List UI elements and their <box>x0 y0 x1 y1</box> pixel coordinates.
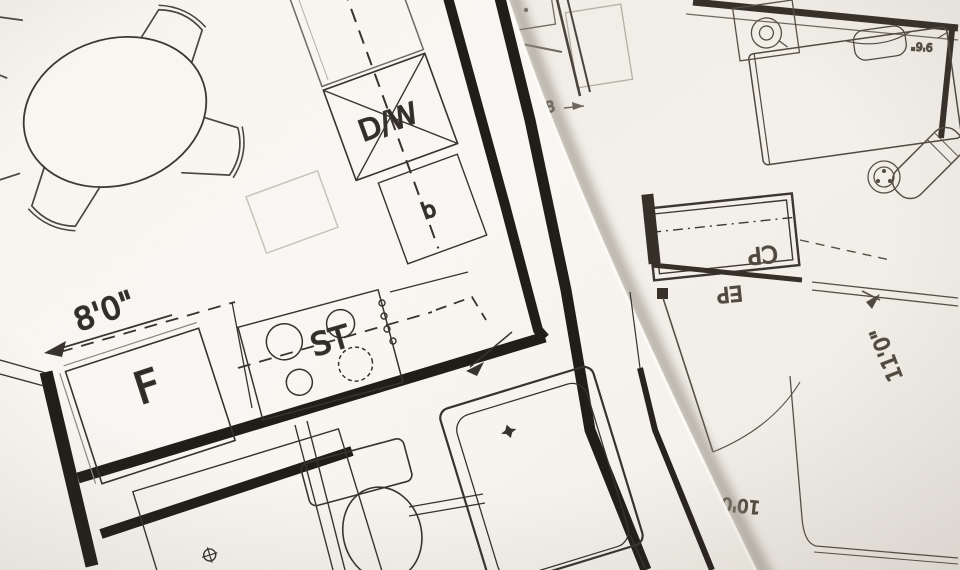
paper-texture-overlay <box>0 0 960 570</box>
floor-plan-scene: d 8'0" <box>0 0 960 570</box>
photo-of-floor-plans: d 8'0" <box>0 0 960 570</box>
